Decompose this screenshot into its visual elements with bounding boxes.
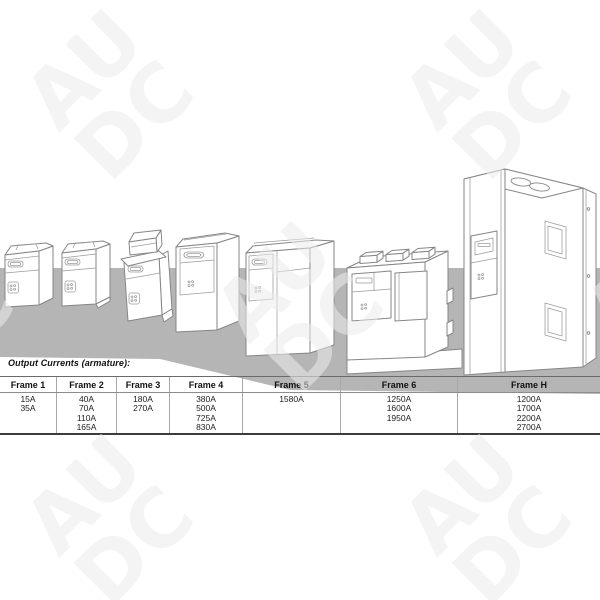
frame-column-frame-4: Frame 4380A500A725A830A	[170, 377, 243, 433]
frame-column-header: Frame H	[458, 377, 600, 392]
frame-4-drive	[176, 233, 239, 332]
frame-column-values: 1580A	[243, 392, 340, 404]
frame-column-frame-2: Frame 240A70A110A165A	[57, 377, 117, 433]
current-value: 1950A	[341, 414, 457, 423]
current-value: 830A	[170, 423, 242, 432]
frame-5-drive	[246, 238, 334, 356]
frame-h-drive	[464, 169, 596, 375]
frame-1-drive	[5, 243, 53, 307]
frame-table: Frame 115A35AFrame 240A70A110A165AFrame …	[0, 376, 600, 435]
frame-column-frame-5: Frame 51580A	[243, 377, 341, 433]
frame-column-header: Frame 2	[57, 377, 116, 392]
current-value: 1580A	[243, 395, 340, 404]
current-value: 2700A	[458, 423, 600, 432]
frame-column-values: 40A70A110A165A	[57, 392, 116, 433]
current-value: 165A	[57, 423, 116, 432]
current-value: 270A	[117, 404, 169, 413]
product-illustration	[0, 0, 600, 600]
frame-column-values: 15A35A	[0, 392, 56, 414]
product-lineup-figure: Output Currents (armature): Frame 115A35…	[0, 0, 600, 600]
frame-column-values: 180A270A	[117, 392, 169, 414]
frame-column-values: 380A500A725A830A	[170, 392, 242, 433]
frame-column-header: Frame 5	[243, 377, 340, 392]
frame-3-drive	[121, 230, 173, 322]
frame-column-frame-h: Frame H1200A1700A2200A2700A	[458, 377, 600, 433]
frame-column-frame-1: Frame 115A35A	[0, 377, 57, 433]
frame-2-drive	[62, 241, 110, 308]
frame-column-header: Frame 1	[0, 377, 56, 392]
current-value: 35A	[0, 404, 56, 413]
section-title: Output Currents (armature):	[8, 358, 130, 368]
frame-column-frame-3: Frame 3180A270A	[117, 377, 170, 433]
frame-column-header: Frame 3	[117, 377, 169, 392]
frame-column-values: 1200A1700A2200A2700A	[458, 392, 600, 433]
frame-column-frame-6: Frame 61250A1600A1950A	[341, 377, 458, 433]
frame-column-header: Frame 6	[341, 377, 457, 392]
frame-6-drive	[347, 247, 462, 374]
frame-column-header: Frame 4	[170, 377, 242, 392]
frame-column-values: 1250A1600A1950A	[341, 392, 457, 423]
